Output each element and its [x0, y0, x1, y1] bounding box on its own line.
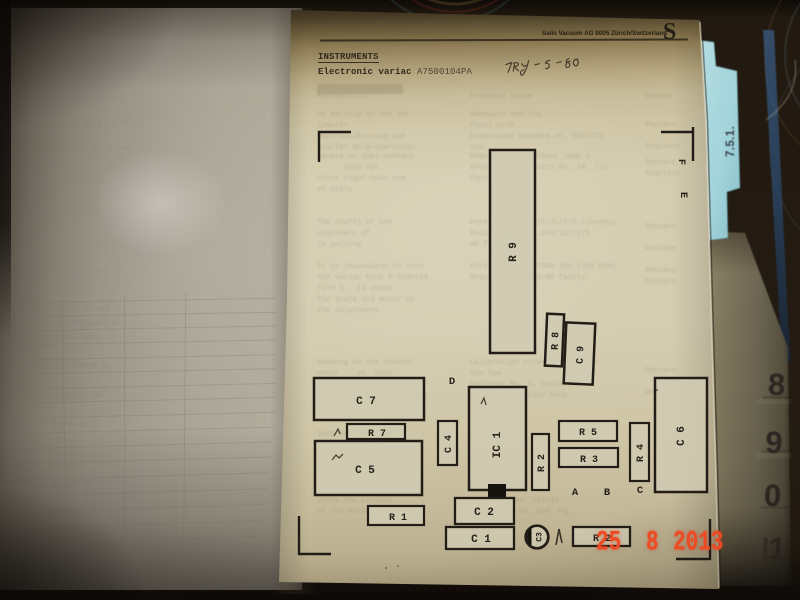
svg-text:B: B: [604, 487, 611, 499]
svg-text:A: A: [572, 487, 579, 499]
svg-text:E: E: [677, 192, 689, 198]
svg-text:R 2: R 2: [537, 454, 548, 472]
svg-text:C 9: C 9: [576, 346, 588, 364]
svg-text:R 7: R 7: [368, 429, 386, 440]
svg-text:R 4: R 4: [636, 444, 647, 462]
svg-text:C 7: C 7: [356, 396, 376, 408]
svg-text:R 5: R 5: [579, 428, 597, 439]
svg-text:C 6: C 6: [676, 426, 688, 446]
svg-text:C3: C3: [536, 532, 545, 542]
svg-text:C 2: C 2: [474, 507, 494, 519]
svg-text:F: F: [675, 159, 687, 165]
svg-text:C 4: C 4: [444, 435, 455, 453]
svg-text:IC 1: IC 1: [492, 431, 504, 458]
svg-text:D: D: [449, 376, 455, 388]
svg-text:R 2: R 2: [593, 534, 611, 545]
svg-text:R 8: R 8: [551, 332, 563, 350]
svg-text:C: C: [637, 485, 644, 497]
svg-text:R 9: R 9: [508, 242, 520, 262]
svg-text:R 3: R 3: [580, 455, 598, 466]
svg-text:C 5: C 5: [355, 465, 375, 477]
svg-text:C 1: C 1: [471, 534, 491, 546]
svg-text:R 1: R 1: [389, 513, 407, 524]
